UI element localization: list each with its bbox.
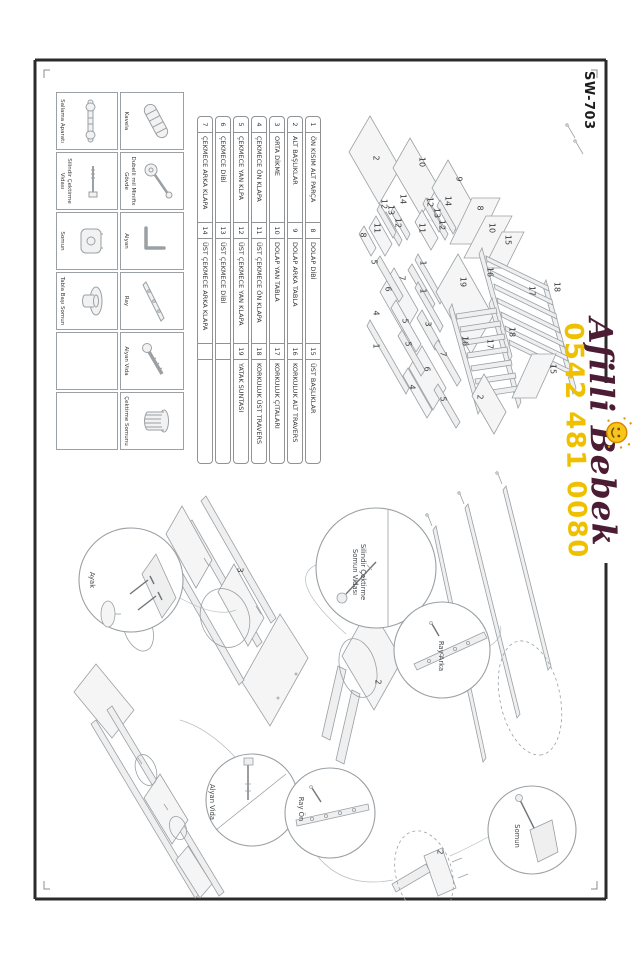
empty-cell [59,393,117,449]
hardware-label: Sallama Aparatı [57,98,65,144]
hardware-cell-empty [56,332,118,390]
hardware-cell-cektirme-somunu: Çektirme Somunu [120,392,184,450]
parts-table-row: 5ÇEKMECE YAN KLPA12ÜST ÇEKMECE YAN KLAPA… [233,116,249,464]
hardware-label [57,420,59,422]
allen-key-icon [129,213,183,269]
hardware-cell-kavela: Kavela [120,92,184,150]
assembly-diagrams [74,472,576,901]
parts-table-row: 7ÇEKMECE ARKA KLAPA14ÜST ÇEKMECE ARKA KL… [197,116,213,464]
part-name: ÜST BAŞLIKLAR [306,360,320,463]
part-name: DOLAP DİBİ [306,239,320,344]
part-name: ÜST ÇEKMECE YAN KLAPA [234,239,248,344]
part-no: 11 [252,223,266,239]
hardware-cell-empty [56,392,118,450]
part-no: 3 [270,117,284,133]
caption-ray-arka: Ray Arka [437,641,445,671]
part-name: YATAK SUNTASI [234,360,248,463]
rail-icon [129,273,183,329]
model-number: SW-703 [581,71,596,130]
nut-icon [65,213,117,269]
part-no [216,344,230,360]
hardware-label: Dubelli mil Minifix Gövde [121,153,136,209]
part-name: KORKULUK ÜST TRAVERS [252,360,266,463]
part-no [198,344,212,360]
part-name: ÖN KISIM ALT PARÇA [306,133,320,223]
cam-screw-icon [72,153,117,209]
parts-table-row: 2ALT BAŞLIKLAR9DOLAP ARKA TABLA16KORKULU… [287,116,303,464]
part-no: 13 [216,223,230,239]
screenshot-root: SW-703 1ÖN KISIM ALT PARÇA8DOLAP DİBİ15Ü… [0,0,640,960]
part-name: DOLAP YAN TABLA [270,239,284,344]
flange-nut-icon [65,273,117,329]
part-no: 7 [198,117,212,133]
part-name: ÜST ÇEKMECE DİBİ [216,239,230,344]
part-no: 9 [288,223,302,239]
part-no: 12 [234,223,248,239]
part-name: ÇEKMECE DİBİ [216,133,230,223]
part-name: ÜST ÇEKMECE ARKA KLAPA [198,239,212,344]
hardware-label: Somun [57,230,65,251]
hardware-cell-ray: Ray [120,272,184,330]
part-no: 2 [288,117,302,133]
dowel-icon [129,93,183,149]
part-no: 6 [216,117,230,133]
hardware-label: Alyan [121,232,129,249]
sheet-landscape-content: SW-703 1ÖN KISIM ALT PARÇA8DOLAP DİBİ15Ü… [33,58,608,901]
part-name: ÇEKMECE YAN KLPA [234,133,248,223]
detail-circle-alyan-vida [206,754,298,846]
hardware-cell-somun: Somun [56,212,118,270]
part-no: 4 [252,117,266,133]
hardware-label: Silindir Çektirme Vidası [57,153,72,209]
part-no: 16 [288,344,302,360]
part-name: ÇEKMECE ARKA KLAPA [198,133,212,223]
part-name: ORTA DİKME [270,133,284,223]
caption-silindir-cektirme-somun-vidasi: Silindir Çektirme Somun Vidası [351,539,367,605]
hardware-label: Tabla Başı Somun [57,276,65,326]
parts-table: 1ÖN KISIM ALT PARÇA8DOLAP DİBİ15ÜST BAŞL… [195,116,321,464]
caption-alyan-vida: Alyan Vida [208,784,216,820]
smiley-sun-icon [594,413,637,452]
hardware-cell-alyan-vida: Alyan Vida [120,332,184,390]
hardware-label: Ray [121,295,129,307]
hardware-cell-alyan: Alyan [120,212,184,270]
minifix-icon [136,153,183,209]
part-name: ÇEKMECE ÖN KLAPA [252,133,266,223]
caption-somun: Somun [513,824,521,848]
part-name [198,360,212,463]
part-name: ÜST ÇEKMECE ÖN KLAPA [252,239,266,344]
hardware-label: Kavela [121,111,129,131]
hardware-cell-tabla-basi-somun: Tabla Başı Somun [56,272,118,330]
hardware-label [57,360,59,362]
parts-table-row: 4ÇEKMECE ÖN KLAPA11ÜST ÇEKMECE ÖN KLAPA1… [251,116,267,464]
instruction-sheet: SW-703 1ÖN KISIM ALT PARÇA8DOLAP DİBİ15Ü… [33,58,608,901]
hardware-cell-silindir-cektirme-vidasi: Silindir Çektirme Vidası [56,152,118,210]
swing-rod-icon [65,93,117,149]
parts-table-row: 1ÖN KISIM ALT PARÇA8DOLAP DİBİ15ÜST BAŞL… [305,116,321,464]
hardware-label: Çektirme Somunu [121,395,129,446]
part-name: KORKULUK ALT TRAVERS [288,360,302,463]
part-name: DOLAP ARKA TABLA [288,239,302,344]
part-name: KORKULUK ÇITALARI [270,360,284,463]
hardware-cell-sallama-aparati: Sallama Aparatı [56,92,118,150]
part-name [216,360,230,463]
part-no: 10 [270,223,284,239]
part-no: 15 [306,344,320,360]
allen-bolt-icon [129,333,183,389]
part-no: 18 [252,344,266,360]
detail-circle-somun [488,786,576,874]
part-name: ALT BAŞLIKLAR [288,133,302,223]
exploded-diagram [349,116,583,434]
caption-ayak: Ayak [88,572,96,588]
empty-cell [59,333,117,389]
part-no: 5 [234,117,248,133]
part-no: 19 [234,344,248,360]
watermark: Afilli Bebek 0542 481 0080 [558,317,624,574]
parts-table-row: 3ORTA DİKME10DOLAP YAN TABLA17KORKULUK Ç… [269,116,285,464]
phone-number: 0542 481 0080 [558,318,592,574]
part-no: 17 [270,344,284,360]
hardware-label: Alyan Vida [121,345,129,376]
parts-table-row: 6ÇEKMECE DİBİ13ÜST ÇEKMECE DİBİ [215,116,231,464]
barrel-nut-icon [129,393,183,449]
hardware-grid: Kavela Dubelli mil Minifix Gövde Alyan [56,92,184,450]
part-no: 1 [306,117,320,133]
hardware-cell-minifix: Dubelli mil Minifix Gövde [120,152,184,210]
part-no: 14 [198,223,212,239]
caption-ray-on: Ray Ön [297,797,305,822]
part-no: 8 [306,223,320,239]
